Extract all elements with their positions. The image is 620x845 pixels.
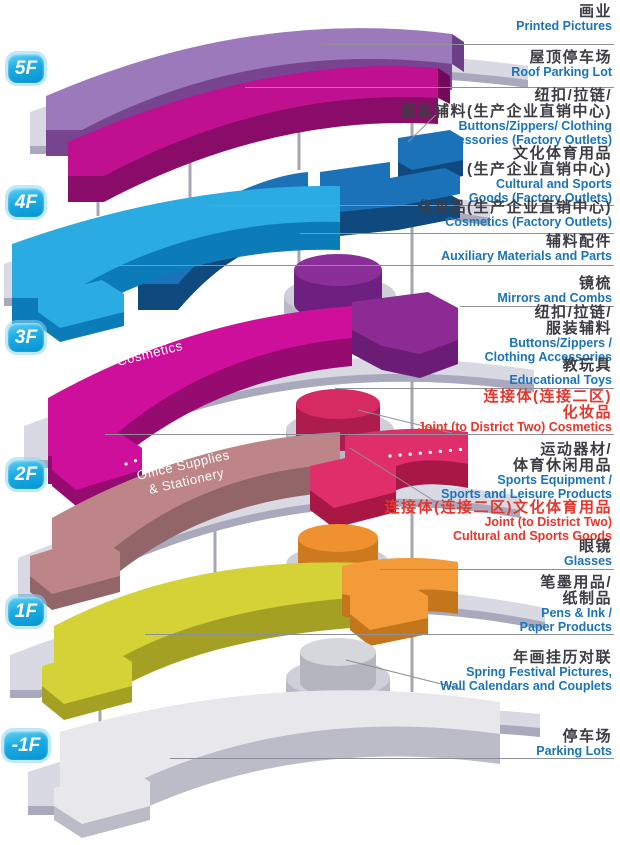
floor-badge-1f: 1F — [8, 597, 44, 626]
label-group-roof-parking-lot: 屋顶停车场 Roof Parking Lot — [511, 50, 612, 80]
label-zh: 体育休闲用品 — [441, 458, 612, 474]
label-group-mirrors-combs: 镜梳 Mirrors and Combs — [497, 276, 612, 306]
label-zh: 服装辅料(生产企业直销中心) — [401, 104, 612, 120]
label-zh: 辅料配件 — [441, 234, 612, 250]
label-zh: 镜梳 — [497, 276, 612, 292]
label-group-spring-festival: 年画挂历对联 Spring Festival Pictures, Wall Ca… — [440, 650, 612, 693]
label-group-buttons-zippers-outlets: 纽扣/拉链/ 服装辅料(生产企业直销中心) Buttons/Zippers/ C… — [401, 88, 612, 147]
floor-badge-4f: 4F — [8, 188, 44, 217]
label-zh: 笔墨用品/ — [520, 575, 612, 591]
label-group-pens-ink: 笔墨用品/ 纸制品 Pens & Ink / Paper Products — [520, 575, 612, 634]
label-group-auxiliary-materials: 辅料配件 Auxiliary Materials and Parts — [441, 234, 612, 264]
label-en: Glasses — [564, 555, 612, 569]
label-zh: 服装辅料 — [485, 321, 612, 337]
label-en: Buttons/Zippers / — [485, 337, 612, 351]
label-en: Wall Calendars and Couplets — [440, 680, 612, 694]
floor-badge-3f: 3F — [8, 323, 44, 352]
label-en: Spring Festival Pictures, — [440, 666, 612, 680]
label-zh: 纸制品 — [520, 591, 612, 607]
tower-top — [294, 254, 382, 286]
label-en: Joint (to District Two) Cosmetics — [418, 421, 612, 435]
label-en: Joint (to District Two) — [385, 516, 613, 530]
label-zh: 化妆品 — [418, 405, 612, 421]
tower-top — [296, 389, 380, 419]
floor-badge-b1: -1F — [4, 731, 48, 760]
label-zh: 文化体育用品 — [467, 146, 612, 162]
label-en: Educational Toys — [509, 374, 612, 388]
label-group-joint-cultural-sports: 连接体(连接二区)文化体育用品 Joint (to District Two) … — [385, 500, 613, 543]
label-en: Sports Equipment / — [441, 474, 612, 488]
tower-top — [300, 638, 376, 666]
label-zh: 连接体(连接二区) — [418, 389, 612, 405]
label-group-educational-toys: 教玩具 Educational Toys — [509, 358, 612, 388]
floor-badge-5f: 5F — [8, 54, 44, 83]
label-zh: 纽扣/拉链/ — [485, 305, 612, 321]
label-zh: 眼镜 — [564, 539, 612, 555]
label-en: Pens & Ink / — [520, 607, 612, 621]
label-group-cosmetics-outlets: 化妆品(生产企业直销中心) Cosmetics (Factory Outlets… — [418, 200, 613, 230]
floor-directory-diagram: Cosmetics Office Supplies & Stationery — [0, 0, 620, 845]
label-en: Parking Lots — [536, 745, 612, 759]
label-group-cultural-sports-outlets: 文化体育用品 (生产企业直销中心) Cultural and Sports Go… — [467, 146, 612, 205]
label-zh: 纽扣/拉链/ — [401, 88, 612, 104]
label-zh: 停车场 — [536, 729, 612, 745]
label-zh: 屋顶停车场 — [511, 50, 612, 66]
label-en: Auxiliary Materials and Parts — [441, 250, 612, 264]
label-group-buttons-zippers: 纽扣/拉链/ 服装辅料 Buttons/Zippers / Clothing A… — [485, 305, 612, 364]
label-en: Paper Products — [520, 621, 612, 635]
floor-badge-2f: 2F — [8, 460, 44, 489]
label-group-glasses: 眼镜 Glasses — [564, 539, 612, 569]
label-group-printed-pictures: 画业 Printed Pictures — [516, 4, 612, 34]
label-group-joint-cosmetics: 连接体(连接二区) 化妆品 Joint (to District Two) Co… — [418, 389, 612, 435]
label-zh: 连接体(连接二区)文化体育用品 — [385, 500, 613, 516]
label-en: Cosmetics (Factory Outlets) — [418, 216, 613, 230]
label-zh: 运动器材/ — [441, 442, 612, 458]
label-en: Cultural and Sports — [467, 178, 612, 192]
label-zh: (生产企业直销中心) — [467, 162, 612, 178]
label-group-sports-equipment: 运动器材/ 体育休闲用品 Sports Equipment / Sports a… — [441, 442, 612, 501]
tower-top — [298, 524, 378, 552]
label-en: Roof Parking Lot — [511, 66, 612, 80]
label-en: Printed Pictures — [516, 20, 612, 34]
floor-b1 — [28, 690, 540, 838]
label-group-parking-lots: 停车场 Parking Lots — [536, 729, 612, 759]
label-zh: 教玩具 — [509, 358, 612, 374]
label-zh: 年画挂历对联 — [440, 650, 612, 666]
label-zh: 画业 — [516, 4, 612, 20]
label-en: Buttons/Zippers/ Clothing — [401, 120, 612, 134]
label-zh: 化妆品(生产企业直销中心) — [418, 200, 613, 216]
